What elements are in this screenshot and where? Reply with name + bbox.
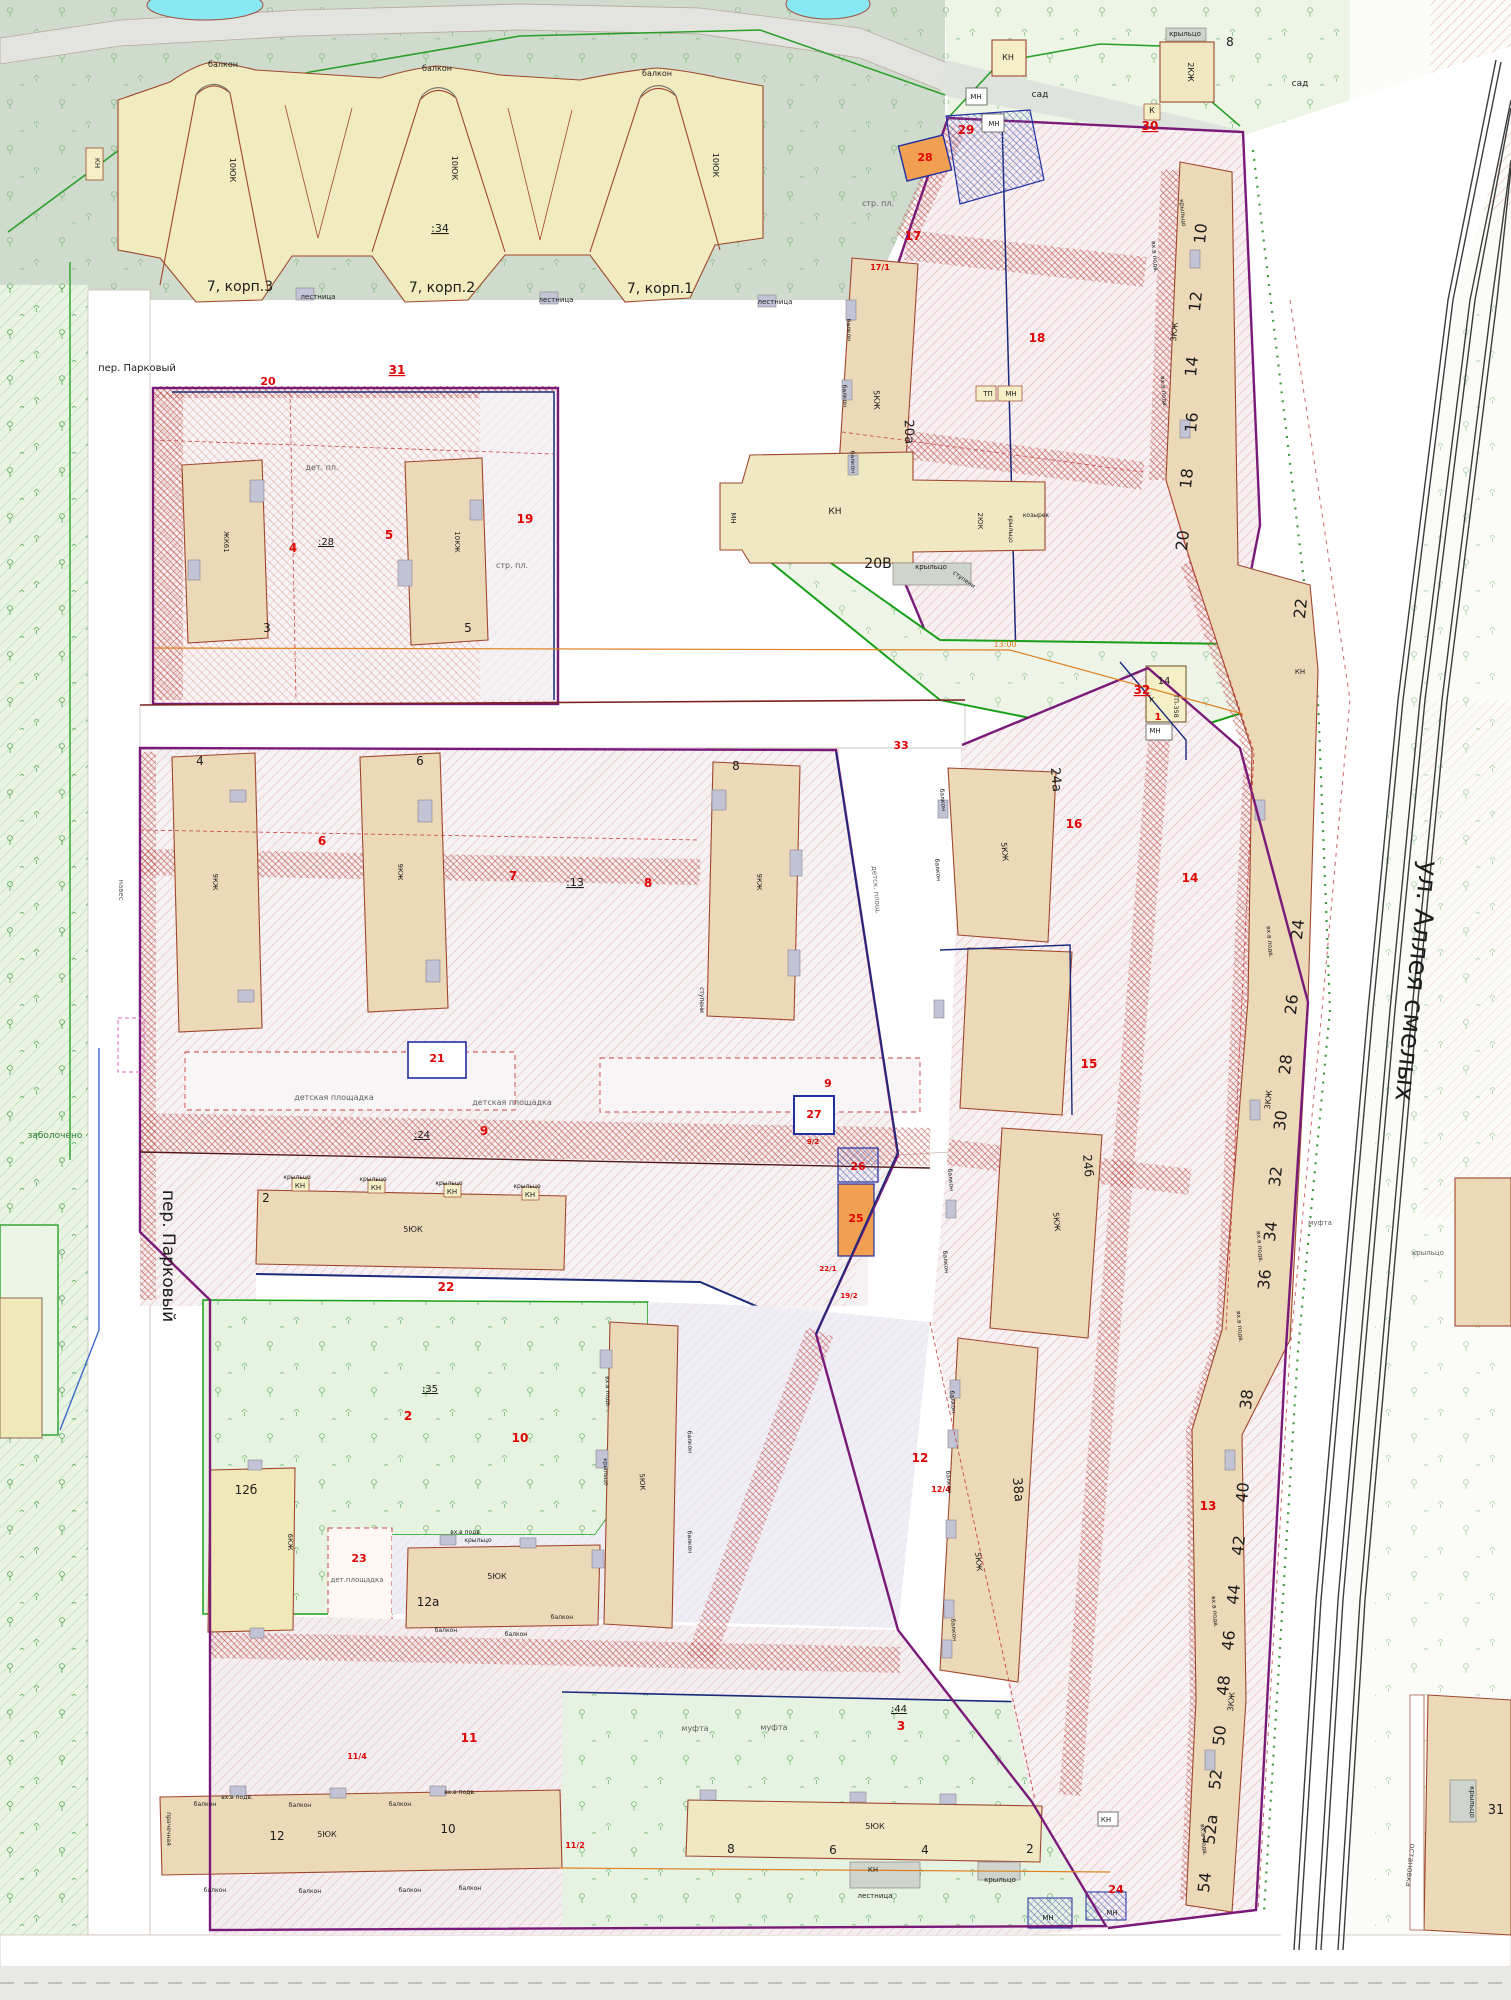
porch-label: крыльцо bbox=[435, 1180, 463, 1187]
house-number: 8 bbox=[732, 759, 740, 773]
building-type-label: 5КЖ bbox=[999, 842, 1010, 862]
utility-label: муфта bbox=[681, 1724, 708, 1733]
area-label: сад bbox=[1292, 79, 1309, 89]
stairs-label: лестница bbox=[858, 1892, 893, 1900]
parcel-number: 12 bbox=[912, 1451, 929, 1465]
stairs-label: лестница bbox=[758, 298, 793, 306]
parcel-number: 27 bbox=[806, 1108, 821, 1121]
cadastral-map: балконбалконбалкон10ЮК10ЮК10ЮК:347, корп… bbox=[0, 0, 1511, 2000]
building-type-label: 9КЖ bbox=[211, 874, 219, 891]
porch-label: крыльцо bbox=[1468, 1786, 1476, 1818]
balcony-label: балкон bbox=[422, 64, 452, 73]
house-number: 42 bbox=[1228, 1534, 1249, 1556]
building-type-label: МН bbox=[970, 93, 981, 101]
parcel-number: 21 bbox=[429, 1052, 444, 1065]
parcel-number: 23 bbox=[351, 1552, 366, 1565]
building-right-edge bbox=[1455, 1178, 1511, 1326]
house-number: 28 bbox=[1275, 1053, 1296, 1075]
balcony-label: балкон bbox=[299, 1888, 322, 1895]
road-middle bbox=[140, 700, 965, 748]
house-number: 50 bbox=[1209, 1724, 1230, 1746]
building-type-label: КН bbox=[1295, 668, 1305, 676]
building-type-label: КН bbox=[447, 1188, 457, 1196]
parcel-number: 14 bbox=[1182, 871, 1199, 885]
building-type-label: 2ЮК bbox=[976, 513, 984, 530]
playground-label: детская площадка bbox=[472, 1098, 552, 1107]
building-type-label: МН bbox=[1005, 390, 1016, 398]
house-number: 4 bbox=[921, 1843, 929, 1857]
balcony-label: балкон bbox=[435, 1627, 458, 1634]
building-type-label: 5ЮК bbox=[865, 1822, 885, 1831]
balcony-label: балкон bbox=[686, 1431, 694, 1454]
building-type-label: КН bbox=[93, 158, 101, 168]
cadastral-number: :35 bbox=[422, 1384, 438, 1395]
parcel-number: 9/2 bbox=[807, 1138, 819, 1146]
house-number: 6 bbox=[416, 754, 424, 768]
porch-label: крыльцо bbox=[1169, 30, 1201, 38]
house-number: 30 bbox=[1270, 1109, 1291, 1131]
house-number: 36 bbox=[1254, 1268, 1275, 1290]
house-number: 6 bbox=[829, 1843, 837, 1857]
map-canvas: балконбалконбалкон10ЮК10ЮК10ЮК:347, корп… bbox=[0, 0, 1511, 2000]
entrance-label: вх.в подв. bbox=[444, 1789, 476, 1796]
building-5 bbox=[405, 458, 488, 645]
stairs-label: лестница bbox=[539, 296, 574, 304]
parcel-number: 24 bbox=[1108, 1883, 1124, 1896]
balcony-label: балкон bbox=[289, 1802, 312, 1809]
porch-label: крыльцо bbox=[464, 1537, 492, 1544]
playground-label: детская площадка bbox=[294, 1093, 374, 1102]
parcel-number: 17/1 bbox=[870, 263, 890, 272]
building-type-label: К bbox=[1149, 106, 1155, 115]
house-number: 12 bbox=[1185, 290, 1206, 312]
house-number: 31 bbox=[1488, 1803, 1505, 1818]
building-type-label: 5ЮК bbox=[403, 1225, 423, 1234]
parcel-number: 11 bbox=[461, 1731, 478, 1745]
parcel-number: 25 bbox=[848, 1212, 863, 1225]
house-number: 52 bbox=[1205, 1768, 1226, 1790]
building-type-label: КН bbox=[295, 1182, 305, 1190]
house-number: 44 bbox=[1223, 1583, 1244, 1605]
parcel-number: 22 bbox=[438, 1280, 455, 1294]
house-number: 4 bbox=[196, 754, 204, 768]
building-type-label: 6КЖ bbox=[286, 1534, 294, 1551]
utility-label: муфта bbox=[760, 1723, 787, 1732]
parcel-number: 5 bbox=[385, 528, 393, 542]
balcony-label: балкон bbox=[686, 1531, 694, 1554]
building-type-label: 5КЖ bbox=[872, 390, 882, 410]
house-number: 10 bbox=[440, 1822, 455, 1836]
balcony-label: балкон bbox=[459, 1885, 482, 1892]
house-number: 38 bbox=[1236, 1388, 1257, 1410]
parcel-number: 11/2 bbox=[565, 1841, 585, 1850]
house-number: 32 bbox=[1265, 1165, 1286, 1187]
building-type-label: 9КЖ bbox=[755, 874, 763, 891]
house-number: 10 bbox=[1190, 222, 1211, 244]
street-name: пер. Парковый bbox=[158, 1190, 178, 1322]
cadastral-number: :34 bbox=[431, 222, 449, 235]
building-7-korpusa bbox=[86, 62, 763, 302]
porch-label: крыльцо bbox=[1007, 515, 1014, 543]
parcel-number: 2 bbox=[404, 1409, 412, 1423]
parcel-number: 29 bbox=[958, 123, 975, 137]
parcel-number: 16 bbox=[1066, 817, 1083, 831]
canopy-label: козырек bbox=[1023, 512, 1050, 519]
house-number: 34 bbox=[1260, 1220, 1281, 1242]
house-number: 2 bbox=[262, 1191, 270, 1205]
house-number: 12а bbox=[417, 1595, 440, 1609]
entrance-label: вх.в подв. bbox=[450, 1529, 482, 1536]
building-type-label: 5КЖ bbox=[973, 1552, 984, 1572]
building-8-2 bbox=[686, 1800, 1042, 1862]
balcony-label: балкон bbox=[208, 60, 238, 69]
building-type-label: 5ЮК bbox=[638, 1473, 647, 1490]
house-number: 20В bbox=[864, 556, 891, 572]
house-number: 12 bbox=[269, 1829, 284, 1843]
building-type-label: МН bbox=[1042, 1914, 1053, 1922]
cadastral-number: 13:00 bbox=[993, 640, 1016, 649]
house-number: 26 bbox=[1281, 993, 1302, 1015]
building-type-label: КН bbox=[371, 1184, 381, 1192]
balcony-label: балкон bbox=[505, 1631, 528, 1638]
porch-label: крыльцо bbox=[359, 1176, 387, 1183]
house-number: 20а bbox=[901, 419, 917, 444]
house-number: 40 bbox=[1232, 1481, 1253, 1503]
parcel-number: 6 bbox=[318, 834, 326, 848]
parcel-number: 1 bbox=[1155, 712, 1162, 723]
house-number: 24б bbox=[1080, 1154, 1096, 1178]
building-type-label: МН bbox=[729, 512, 737, 523]
parcel-number: 22/1 bbox=[819, 1265, 836, 1273]
road-bottom bbox=[0, 1935, 1511, 1967]
building-type-label: 5ЮК bbox=[317, 1830, 337, 1839]
house-number: 38а bbox=[1009, 1477, 1026, 1503]
stairs-label: лестница bbox=[301, 293, 336, 301]
house-number: 2 bbox=[1026, 1842, 1034, 1856]
house-number: 8 bbox=[1226, 35, 1234, 49]
porch-label: крыльцо bbox=[513, 1183, 541, 1190]
porch-label: крыльцо bbox=[602, 1458, 610, 1486]
balcony-label: балкон bbox=[845, 319, 853, 342]
building-type-label: 2КЖ bbox=[1186, 62, 1195, 82]
house-number: 8 bbox=[727, 1842, 735, 1856]
balcony-label: балкон bbox=[642, 69, 672, 78]
building-type-label: МН bbox=[1149, 727, 1160, 735]
balcony-label: балкон bbox=[841, 385, 849, 408]
balcony-label: балкон bbox=[389, 1801, 412, 1808]
house-number: 24 bbox=[1287, 918, 1308, 940]
parcel-number: 15 bbox=[1081, 1057, 1098, 1071]
building-type-label: КН bbox=[828, 507, 841, 517]
parcel-number: 9 bbox=[824, 1077, 832, 1090]
building-type-label: 5КЖ bbox=[1051, 1212, 1062, 1232]
house-number: 16 bbox=[1181, 411, 1202, 433]
street-name: пер. Парковый bbox=[98, 363, 176, 374]
parcel-number: 31 bbox=[389, 363, 406, 377]
parcel-number: 17 bbox=[905, 229, 922, 243]
entrance-label: вх.в подв. bbox=[603, 1376, 611, 1408]
building-type-label: КН bbox=[1101, 1816, 1111, 1824]
parcel-number: 3 bbox=[897, 1719, 905, 1733]
area-label: навес bbox=[117, 879, 125, 900]
building-type-label: 5ЮК bbox=[487, 1572, 507, 1581]
balcony-label: балкон bbox=[551, 1614, 574, 1621]
porch-label: крыльцо bbox=[984, 1876, 1016, 1884]
building-type-label: ТП-358 bbox=[1172, 693, 1180, 718]
cadastral-number: :28 bbox=[318, 537, 334, 548]
building-type-label: прачечная bbox=[165, 1812, 172, 1846]
parcel-number: 11/4 bbox=[347, 1752, 367, 1761]
balcony-label: балкон bbox=[849, 451, 857, 474]
building-type-label: КН bbox=[525, 1191, 535, 1199]
building-type-label: КН bbox=[1002, 53, 1014, 62]
house-number: 5 bbox=[464, 621, 472, 635]
parcel-number: 9 bbox=[480, 1124, 488, 1138]
house-number: 7, корп.2 bbox=[409, 280, 475, 296]
parcel-number: 4 bbox=[289, 541, 297, 555]
cadastral-number: :13 bbox=[566, 876, 584, 889]
house-number: 46 bbox=[1218, 1629, 1239, 1651]
building-type-label: МН bbox=[1106, 1909, 1117, 1917]
house-number: 20 bbox=[1172, 529, 1193, 551]
house-number: 12б bbox=[235, 1483, 258, 1497]
area-label: стр. пл. bbox=[496, 561, 528, 570]
building-type-label: 9КЖ bbox=[396, 864, 404, 881]
parcel-number: 28 bbox=[917, 151, 932, 164]
playground-label: дет. пл. bbox=[305, 463, 338, 472]
balcony-label: балкон bbox=[399, 1887, 422, 1894]
building-type-label: 10ЮК bbox=[711, 153, 720, 178]
parcel-number: 7 bbox=[509, 869, 517, 883]
area-label: заболочено bbox=[28, 1131, 83, 1141]
building-type-label: ТП bbox=[982, 390, 993, 398]
cadastral-number: :44 bbox=[891, 1704, 907, 1715]
building-24-mid bbox=[960, 948, 1072, 1115]
utility-label: муфта bbox=[1308, 1219, 1332, 1227]
parcel-number: 19 bbox=[517, 512, 534, 526]
house-number: 52а bbox=[1200, 1813, 1222, 1845]
steps-label: ступени bbox=[698, 987, 705, 1013]
building-type-label: К bbox=[1150, 696, 1155, 704]
balcony-label: балкон bbox=[194, 1801, 217, 1808]
building-type-label: КН bbox=[868, 1866, 878, 1874]
area-label: стр. пл. bbox=[862, 199, 894, 208]
house-number: 18 bbox=[1176, 467, 1197, 489]
cadastral-number: :24 bbox=[414, 1130, 430, 1141]
parcel-number: 32 bbox=[1134, 683, 1151, 697]
playground-label: дет.площадка bbox=[330, 1576, 383, 1584]
balcony-label: балкон bbox=[204, 1887, 227, 1894]
house-number: 7, корп.1 bbox=[627, 281, 693, 297]
house-number: 14 bbox=[1181, 355, 1202, 377]
building-type-label: 10ЮК bbox=[228, 158, 237, 183]
building-type-label: ЖК61 bbox=[222, 531, 230, 552]
building-type-label: 10ЮК bbox=[450, 156, 459, 181]
porch-label: крыльцо bbox=[915, 563, 947, 571]
entrance-label: вх.в подв. bbox=[221, 1794, 253, 1801]
parcel-number: 8 bbox=[644, 876, 652, 890]
house-number: 7, корп.3 bbox=[207, 279, 273, 295]
building-type-label: МН bbox=[988, 120, 999, 128]
parcel-number: 10 bbox=[512, 1431, 529, 1445]
area-label: сад bbox=[1032, 90, 1049, 100]
parcel-number: 18 bbox=[1029, 331, 1046, 345]
parcel-number: 33 bbox=[893, 739, 908, 752]
porch-label: крыльцо bbox=[1412, 1249, 1444, 1257]
parcel-number: 13 bbox=[1200, 1499, 1217, 1513]
house-number: 14 bbox=[1158, 676, 1171, 687]
house-number: 22 bbox=[1290, 597, 1311, 619]
parcel-number: 19/2 bbox=[840, 1292, 857, 1300]
house-number: 24а bbox=[1047, 767, 1064, 793]
building-type-label: 10КЖ bbox=[453, 531, 461, 553]
porch-label: крыльцо bbox=[283, 1174, 311, 1181]
building-12-10 bbox=[160, 1790, 562, 1875]
house-number: 3 bbox=[263, 621, 271, 635]
parcel-number: 20 bbox=[260, 375, 276, 388]
parcel-number: 26 bbox=[850, 1160, 866, 1173]
house-number: 54 bbox=[1194, 1871, 1215, 1893]
parcel-number: 30 bbox=[1142, 119, 1159, 133]
